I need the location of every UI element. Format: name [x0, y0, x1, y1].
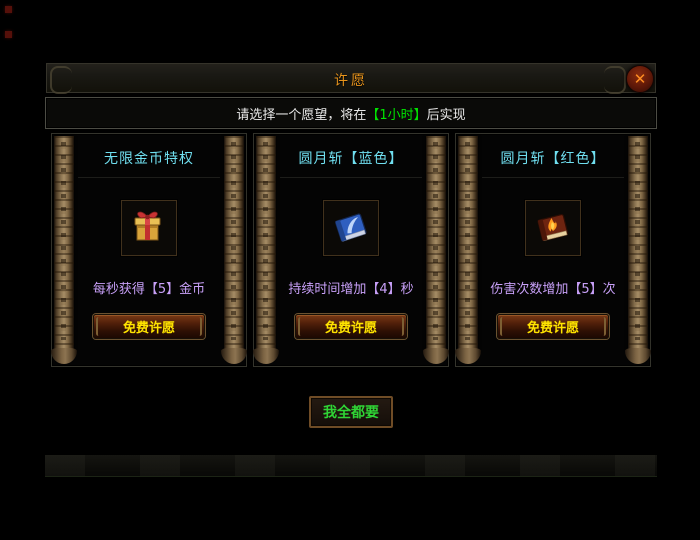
subtitle-bar: 请选择一个愿望，将在【1小时】后实现 — [45, 97, 657, 129]
background-artifact — [5, 31, 12, 38]
free-wish-button-gold[interactable]: 免费许愿 — [93, 314, 205, 339]
blue-book-icon — [329, 206, 373, 250]
dialog-bottom-decoration — [45, 454, 657, 477]
close-icon: ✕ — [634, 72, 647, 87]
item-slot[interactable] — [323, 200, 379, 256]
game-screen: 许愿 ✕ 请选择一个愿望，将在【1小时】后实现 无限金币特权 — [0, 0, 700, 540]
gift-box-icon — [127, 206, 171, 250]
subtitle-text-suffix: 后实现 — [427, 104, 466, 123]
item-slot[interactable] — [121, 200, 177, 256]
item-slot[interactable] — [525, 200, 581, 256]
wish-panel-gold: 无限金币特权 每秒获得【5】金币 — [51, 133, 247, 367]
wood-pillar-decoration — [458, 136, 478, 350]
take-all-button[interactable]: 我全都要 — [309, 396, 393, 428]
wood-pillar-decoration — [54, 136, 74, 350]
wish-panel-red: 圆月斩【红色】 伤害次数增加【5】次 — [455, 133, 651, 367]
wish-title-blue: 圆月斩【蓝色】 — [280, 148, 422, 178]
wish-description-gold: 每秒获得【5】金币 — [78, 278, 220, 297]
subtitle-highlight: 【1小时】 — [366, 104, 426, 123]
wood-pillar-decoration — [426, 136, 446, 350]
wood-pillar-decoration — [628, 136, 648, 350]
wish-description-red: 伤害次数增加【5】次 — [482, 278, 624, 297]
dialog-titlebar: 许愿 — [45, 62, 657, 94]
wish-description-blue: 持续时间增加【4】秒 — [280, 278, 422, 297]
wood-pillar-decoration — [224, 136, 244, 350]
subtitle-text: 请选择一个愿望，将在 — [236, 104, 366, 123]
free-wish-button-blue[interactable]: 免费许愿 — [295, 314, 407, 339]
close-button[interactable]: ✕ — [626, 65, 654, 93]
wish-dialog: 许愿 ✕ 请选择一个愿望，将在【1小时】后实现 无限金币特权 — [45, 62, 657, 479]
wish-panel-blue: 圆月斩【蓝色】 持续时间增加【4】秒 免费许愿 — [253, 133, 449, 367]
dialog-title: 许愿 — [46, 70, 656, 90]
wish-panels: 无限金币特权 每秒获得【5】金币 — [51, 133, 651, 367]
wish-title-gold: 无限金币特权 — [78, 148, 220, 178]
wood-pillar-decoration — [256, 136, 276, 350]
background-artifact — [5, 6, 12, 13]
free-wish-button-red[interactable]: 免费许愿 — [497, 314, 609, 339]
fire-book-icon — [531, 206, 575, 250]
wish-title-red: 圆月斩【红色】 — [482, 148, 624, 178]
